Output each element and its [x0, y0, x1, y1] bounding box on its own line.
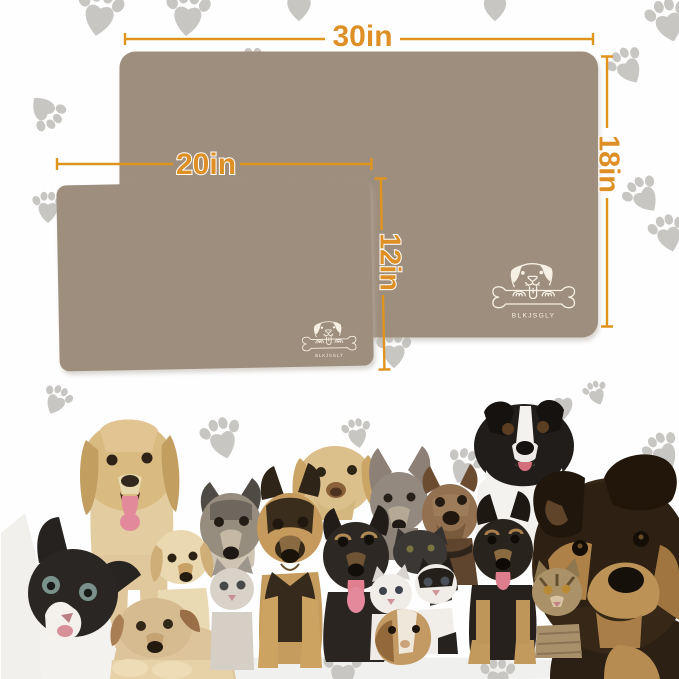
svg-text:30in: 30in — [332, 20, 392, 53]
svg-text:20in: 20in — [176, 148, 236, 181]
svg-text:12in: 12in — [374, 233, 406, 291]
svg-text:18in: 18in — [593, 135, 625, 193]
